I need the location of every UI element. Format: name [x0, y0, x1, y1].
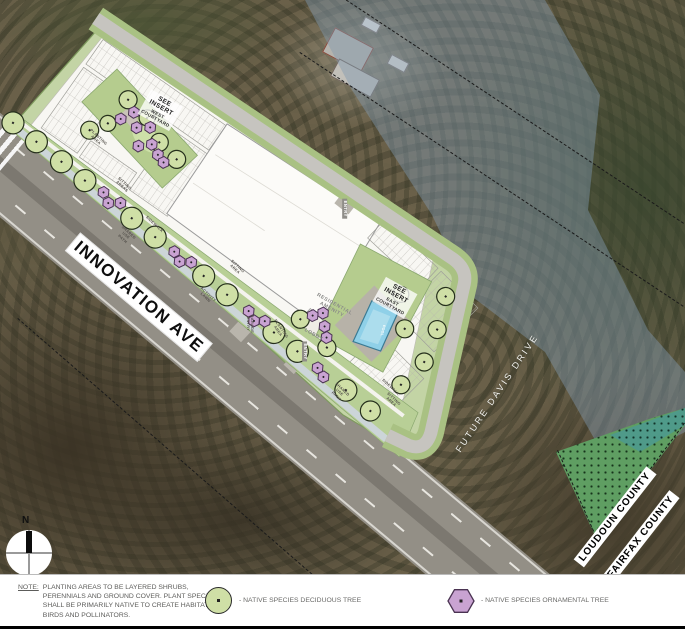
north-label: N — [22, 515, 29, 526]
label-entry-south: ENTRY — [302, 341, 307, 361]
legend-strip: NOTE:PLANTING AREAS TO BE LAYERED SHRUBS… — [0, 574, 685, 629]
legend-item-ornamental: - NATIVE SPECIES ORNAMENTAL TREE — [447, 587, 475, 620]
deciduous-tree-icon — [205, 587, 232, 614]
label-entry-north: ENTRY — [342, 199, 347, 219]
note-prefix: NOTE: — [18, 584, 39, 591]
legend-label-ornamental: - NATIVE SPECIES ORNAMENTAL TREE — [481, 597, 609, 604]
legend-item-deciduous: - NATIVE SPECIES DECIDUOUS TREE — [205, 587, 232, 614]
label-garage-entry: GARAGE ENTRY — [245, 315, 254, 333]
note-text: PLANTING AREAS TO BE LAYERED SHRUBS, PER… — [43, 583, 225, 620]
aerial-map: INNOVATION AVE — [0, 0, 685, 574]
site-plan-page: { "map": { "road_label": "INNOVATION AVE… — [0, 0, 685, 629]
north-arrow-icon — [6, 530, 52, 574]
legend-label-deciduous: - NATIVE SPECIES DECIDUOUS TREE — [239, 597, 361, 604]
plan-note: NOTE:PLANTING AREAS TO BE LAYERED SHRUBS… — [18, 583, 225, 620]
ornamental-tree-icon — [447, 587, 475, 615]
